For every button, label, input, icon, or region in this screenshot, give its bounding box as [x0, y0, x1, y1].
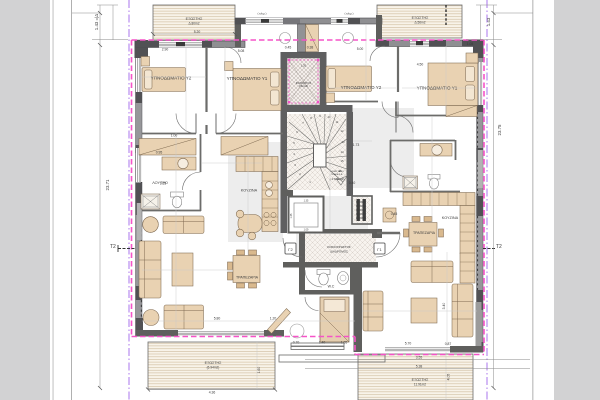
- svg-text:1.43: 1.43: [486, 17, 491, 26]
- svg-text:15: 15: [340, 159, 344, 163]
- svg-text:0.70: 0.70: [293, 341, 300, 345]
- svg-text:1.05: 1.05: [467, 42, 474, 46]
- svg-text:9.6x4.20: 9.6x4.20: [299, 86, 309, 88]
- svg-text:ΕΞΩΣΤΗΣ: ΕΞΩΣΤΗΣ: [412, 378, 429, 382]
- svg-text:Γ2: Γ2: [288, 247, 293, 252]
- svg-text:4.50: 4.50: [417, 63, 424, 67]
- svg-text:1.20: 1.20: [270, 317, 277, 321]
- svg-text:5.08: 5.08: [238, 49, 245, 53]
- svg-text:11: 11: [336, 120, 339, 124]
- svg-text:1.73: 1.73: [353, 143, 360, 147]
- svg-text:14: 14: [340, 150, 344, 154]
- svg-text:0.40: 0.40: [349, 181, 356, 185]
- svg-text:T2: T2: [496, 244, 502, 250]
- svg-text:( κλιμ ): ( κλιμ ): [344, 12, 353, 16]
- svg-text:12: 12: [340, 129, 344, 133]
- svg-text:3.55: 3.55: [416, 356, 423, 360]
- svg-text:5.00: 5.00: [357, 47, 364, 51]
- svg-text:1.09: 1.09: [304, 229, 309, 232]
- svg-text:5.38: 5.38: [416, 365, 423, 369]
- svg-text:Δ.80m2: Δ.80m2: [189, 22, 200, 26]
- svg-text:( κλιμ ): ( κλιμ ): [257, 12, 266, 16]
- svg-text:1.60: 1.60: [257, 367, 261, 374]
- svg-text:ΥΠΝΟΔΩΜΑΤΙΟ Υ2: ΥΠΝΟΔΩΜΑΤΙΟ Υ2: [341, 85, 382, 90]
- svg-text:ΥΠΝΟΔΩΜΑΤΙΟ Υ1: ΥΠΝΟΔΩΜΑΤΙΟ Υ1: [227, 76, 268, 81]
- svg-text:ΦΩΤΑΓΩΓΟΣ: ΦΩΤΑΓΩΓΟΣ: [296, 81, 312, 85]
- svg-text:1.40: 1.40: [319, 341, 326, 345]
- svg-text:T2: T2: [110, 244, 116, 250]
- svg-text:Γ1: Γ1: [377, 247, 382, 252]
- svg-text:13: 13: [341, 140, 345, 144]
- svg-text:2.90: 2.90: [162, 48, 169, 52]
- svg-text:3.40: 3.40: [442, 303, 446, 310]
- svg-text:ΚΛΙΜ/ΣΤΑΣΙΟ: ΚΛΙΜ/ΣΤΑΣΙΟ: [330, 170, 344, 173]
- svg-text:0.45: 0.45: [285, 46, 292, 50]
- svg-text:1.35: 1.35: [304, 200, 309, 203]
- svg-text:ΕΞΩΣΤΗΣ: ΕΞΩΣΤΗΣ: [412, 16, 429, 20]
- svg-text:(-17.40m2): (-17.40m2): [330, 177, 345, 181]
- svg-text:W.C: W.C: [328, 285, 335, 289]
- svg-text:Δ.56m2: Δ.56m2: [415, 21, 426, 25]
- svg-text:ΕΞΩΣΤΗΣ: ΕΞΩΣΤΗΣ: [186, 17, 203, 21]
- svg-text:1.00: 1.00: [171, 134, 178, 138]
- svg-text:11.91m2: 11.91m2: [414, 383, 426, 387]
- svg-text:ΔΙΑΔΡΟΜΟΣ: ΔΙΑΔΡΟΜΟΣ: [330, 250, 348, 254]
- svg-text:ΠΛΑΚΑ Σ.Β.: ΠΛΑΚΑ Σ.Β.: [331, 173, 343, 176]
- svg-text:23.71: 23.71: [105, 179, 110, 191]
- svg-text:0.95: 0.95: [156, 151, 163, 155]
- svg-text:5.70: 5.70: [405, 342, 412, 346]
- svg-text:5.80: 5.80: [214, 317, 221, 321]
- svg-text:ΚΟΥΖΙΝΑ: ΚΟΥΖΙΝΑ: [241, 189, 258, 193]
- svg-text:ΚΟΙΝΟΧΡΗΣΤΟΣ: ΚΟΙΝΟΧΡΗΣΤΟΣ: [327, 245, 351, 249]
- svg-text:10: 10: [327, 115, 331, 119]
- svg-text:1.35: 1.35: [290, 213, 293, 218]
- svg-text:5.20: 5.20: [194, 30, 201, 34]
- svg-text:0.45: 0.45: [391, 212, 398, 216]
- svg-text:1.43 =|Δ: 1.43 =|Δ: [94, 14, 99, 30]
- svg-text:4.36: 4.36: [209, 391, 216, 395]
- svg-text:ΕΞΩΣΤΗΣ: ΕΞΩΣΤΗΣ: [205, 361, 222, 365]
- svg-text:ΤΡΑΠΕΖΑΡΙΑ: ΤΡΑΠΕΖΑΡΙΑ: [413, 231, 436, 235]
- svg-text:4.05: 4.05: [447, 374, 451, 381]
- svg-text:(6.94m2): (6.94m2): [207, 366, 220, 370]
- svg-text:0.87: 0.87: [445, 342, 452, 346]
- svg-text:1.35: 1.35: [160, 182, 167, 186]
- svg-text:0.38: 0.38: [307, 46, 314, 50]
- svg-text:ΚΟΥΖΙΝΑ: ΚΟΥΖΙΝΑ: [442, 216, 459, 220]
- svg-text:ΤΡΑΠΕΖΑΡΙΑ: ΤΡΑΠΕΖΑΡΙΑ: [236, 276, 259, 280]
- svg-text:23.75: 23.75: [497, 124, 502, 136]
- svg-text:ΥΠΝΟΔΩΜΑΤΙΟ Υ2: ΥΠΝΟΔΩΜΑΤΙΟ Υ2: [151, 76, 192, 81]
- svg-text:1.20: 1.20: [301, 64, 307, 68]
- svg-text:1.05: 1.05: [341, 341, 348, 345]
